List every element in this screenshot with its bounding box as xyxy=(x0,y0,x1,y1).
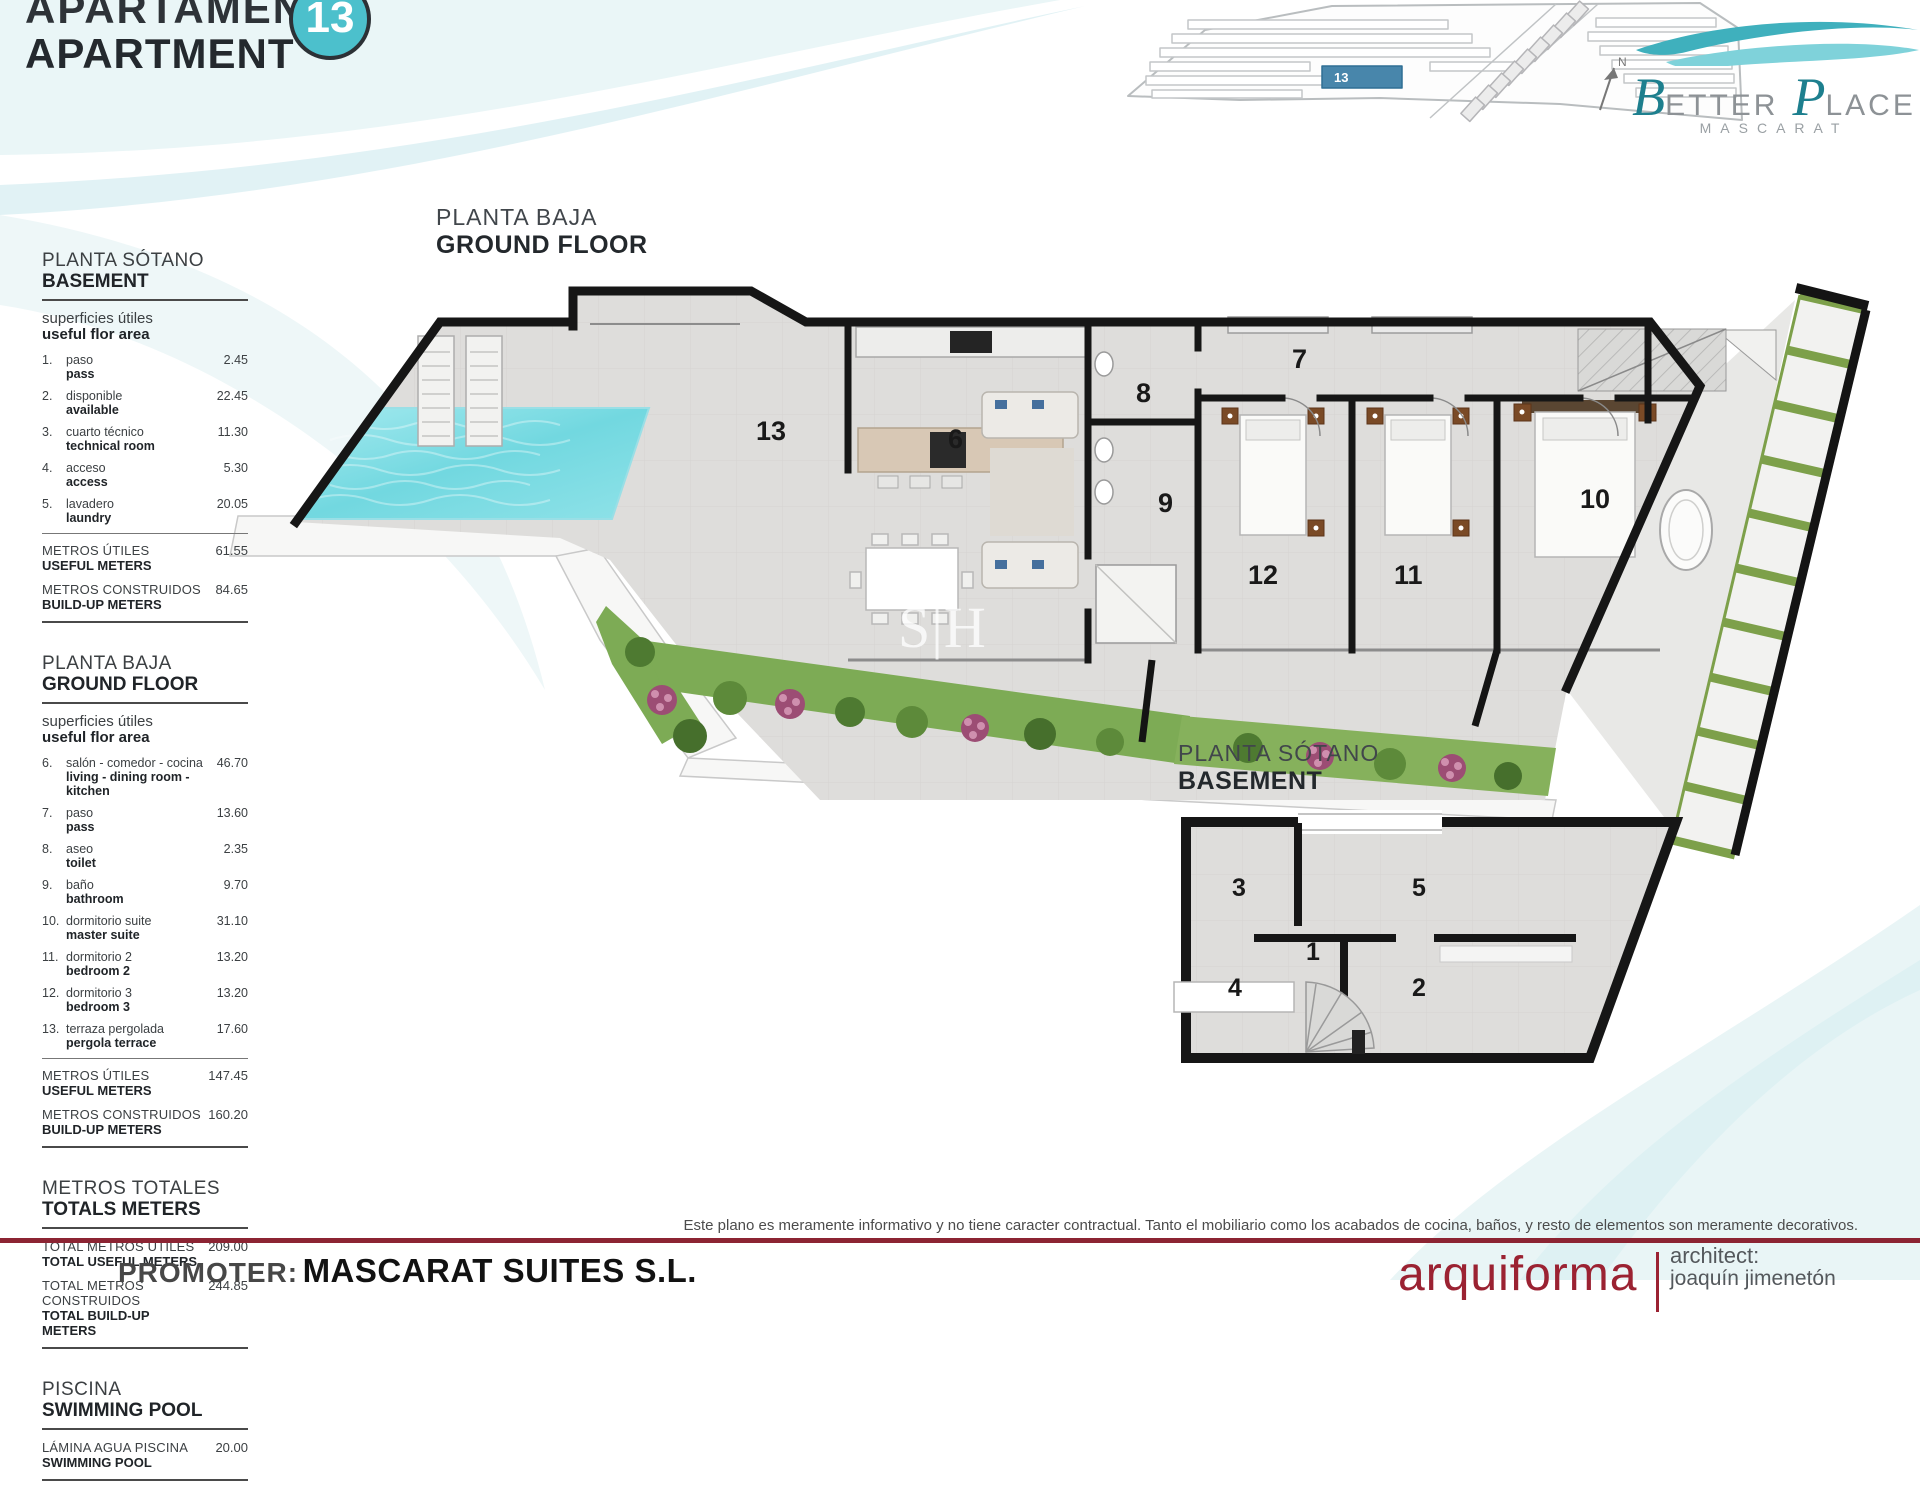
total-row-label-es: METROS ÚTILES xyxy=(42,1068,204,1083)
total-row-label-en: USEFUL METERS xyxy=(42,1083,204,1098)
area-row-value: 20.05 xyxy=(208,497,248,525)
brand-word-lace: LACE xyxy=(1825,89,1915,122)
area-row: 6.salón - comedor - cocinaliving - dinin… xyxy=(42,756,248,798)
section-end-rule xyxy=(42,1347,248,1349)
area-row-labels: cuarto técnicotechnical room xyxy=(66,425,208,453)
basement-plan: 3 5 1 4 2 xyxy=(1174,810,1676,1058)
floor-plan-sheet: { "header": { "title_es": "APARTAMENTO",… xyxy=(0,0,1920,1280)
area-row: 8.aseotoilet2.35 xyxy=(42,842,248,870)
ground-floor-heading-en: GROUND FLOOR xyxy=(436,231,648,260)
room-label: 4 xyxy=(1228,974,1242,1002)
architect-credit: architect: joaquín jimenetón xyxy=(1670,1244,1836,1290)
area-row-value: 46.70 xyxy=(208,756,248,798)
area-row-label-es: dormitorio 2 xyxy=(66,950,208,964)
total-row: METROS ÚTILESUSEFUL METERS147.45 xyxy=(42,1068,248,1098)
area-row-labels: bañobathroom xyxy=(66,878,208,906)
basement-light-band xyxy=(1440,946,1572,962)
watermark: S|H xyxy=(898,594,987,661)
area-row-label-es: lavadero xyxy=(66,497,208,511)
area-row-number: 2. xyxy=(42,389,66,417)
ground-floor-plan: 13 6 7 8 9 12 11 10 xyxy=(230,287,1868,855)
area-row-number: 7. xyxy=(42,806,66,834)
room-label: 1 xyxy=(1306,938,1320,966)
promoter-name: MASCARAT SUITES S.L. xyxy=(303,1252,697,1289)
area-row-label-en: toilet xyxy=(66,856,208,870)
room-label: 13 xyxy=(756,416,786,446)
section-rule-thin xyxy=(42,1058,248,1059)
total-row-label-es: LÁMINA AGUA PISCINA xyxy=(42,1440,204,1455)
area-row-labels: pasopass xyxy=(66,806,208,834)
area-row-value: 11.30 xyxy=(208,425,248,453)
promoter-label: PROMOTER: xyxy=(118,1257,298,1288)
total-row-labels: METROS ÚTILESUSEFUL METERS xyxy=(42,1068,204,1098)
area-row-labels: lavaderolaundry xyxy=(66,497,208,525)
area-row-label-es: baño xyxy=(66,878,208,892)
area-row-label-en: master suite xyxy=(66,928,208,942)
architect-label: architect: xyxy=(1670,1244,1836,1267)
section-title-es: METROS TOTALES xyxy=(42,1178,248,1199)
area-row-number: 13. xyxy=(42,1022,66,1050)
total-row-label-es: METROS ÚTILES xyxy=(42,543,204,558)
basement-heading-en: BASEMENT xyxy=(1178,767,1379,796)
section-subtitle-es: superficies útiles xyxy=(42,714,248,730)
area-row-label-es: dormitorio 3 xyxy=(66,986,208,1000)
area-row-labels: dormitorio suitemaster suite xyxy=(66,914,208,942)
area-row: 7.pasopass13.60 xyxy=(42,806,248,834)
section-subtitle-en: useful flor area xyxy=(42,730,248,746)
area-row-label-en: bathroom xyxy=(66,892,208,906)
total-row-value: 160.20 xyxy=(204,1107,248,1137)
area-row: 2.disponibleavailable22.45 xyxy=(42,389,248,417)
total-row-label-es: METROS CONSTRUIDOS xyxy=(42,582,204,597)
total-row-labels: METROS CONSTRUIDOSBUILD-UP METERS xyxy=(42,582,204,612)
promoter-credit: PROMOTER: MASCARAT SUITES S.L. xyxy=(118,1252,697,1290)
section-title-en: TOTALS METERS xyxy=(42,1199,248,1220)
area-row: 5.lavaderolaundry20.05 xyxy=(42,497,248,525)
brand-subtitle: MASCARAT xyxy=(1628,120,1920,136)
section-rule xyxy=(42,1428,248,1430)
section-title-es: PLANTA SÓTANO xyxy=(42,250,248,271)
sidebar-section: PLANTA BAJAGROUND FLOORsuperficies útile… xyxy=(42,653,248,1148)
section-rule-thin xyxy=(42,533,248,534)
room-label: 11 xyxy=(1394,560,1423,590)
architecture-studio-logo: arquiforma xyxy=(1398,1247,1637,1302)
brand-letter-p: P xyxy=(1792,67,1825,127)
section-title-es: PLANTA BAJA xyxy=(42,653,248,674)
area-row-labels: salón - comedor - cocinaliving - dining … xyxy=(66,756,208,798)
area-row-value: 2.35 xyxy=(208,842,248,870)
total-row-label-es: METROS CONSTRUIDOS xyxy=(42,1107,204,1122)
total-row-labels: METROS CONSTRUIDOSBUILD-UP METERS xyxy=(42,1107,204,1137)
area-row-label-en: pass xyxy=(66,367,208,381)
basement-heading: PLANTA SÓTANO BASEMENT xyxy=(1178,740,1379,796)
area-row: 4.accesoaccess5.30 xyxy=(42,461,248,489)
area-row-label-en: bedroom 2 xyxy=(66,964,208,978)
room-label: 7 xyxy=(1292,344,1307,374)
area-row-labels: dormitorio 2bedroom 2 xyxy=(66,950,208,978)
total-row-label-en: SWIMMING POOL xyxy=(42,1455,204,1470)
area-row-label-en: available xyxy=(66,403,208,417)
total-row-labels: LÁMINA AGUA PISCINASWIMMING POOL xyxy=(42,1440,204,1470)
room-label: 12 xyxy=(1248,560,1278,590)
ground-floor-heading-es: PLANTA BAJA xyxy=(436,204,648,231)
total-row-label-en: TOTAL BUILD-UP METERS xyxy=(42,1308,204,1338)
total-row-label-en: BUILD-UP METERS xyxy=(42,1122,204,1137)
area-row-label-es: aseo xyxy=(66,842,208,856)
brand-logo: BETTERPLACE MASCARAT xyxy=(1628,14,1920,134)
area-row-number: 12. xyxy=(42,986,66,1014)
room-label: 10 xyxy=(1580,484,1610,514)
total-row: LÁMINA AGUA PISCINASWIMMING POOL20.00 xyxy=(42,1440,248,1470)
area-row-label-en: laundry xyxy=(66,511,208,525)
total-row-value: 84.65 xyxy=(204,582,248,612)
total-row: METROS CONSTRUIDOSBUILD-UP METERS84.65 xyxy=(42,582,248,612)
area-row-number: 6. xyxy=(42,756,66,798)
section-rule xyxy=(42,702,248,704)
area-row-number: 8. xyxy=(42,842,66,870)
area-row-number: 5. xyxy=(42,497,66,525)
area-row-labels: accesoaccess xyxy=(66,461,208,489)
total-row-label-en: BUILD-UP METERS xyxy=(42,597,204,612)
area-row-value: 13.60 xyxy=(208,806,248,834)
area-row-label-en: access xyxy=(66,475,208,489)
section-rule xyxy=(42,299,248,301)
area-tables-sidebar: PLANTA SÓTANOBASEMENTsuperficies útilesu… xyxy=(42,250,248,1511)
section-title-es: PISCINA xyxy=(42,1379,248,1400)
area-row-label-en: living - dining room - kitchen xyxy=(66,770,208,798)
total-row-label-en: USEFUL METERS xyxy=(42,558,204,573)
total-row: METROS CONSTRUIDOSBUILD-UP METERS160.20 xyxy=(42,1107,248,1137)
section-end-rule xyxy=(42,1479,248,1481)
area-row-value: 5.30 xyxy=(208,461,248,489)
svg-text:N: N xyxy=(1618,55,1627,69)
area-row-labels: terraza pergoladapergola terrace xyxy=(66,1022,208,1050)
area-row-label-es: paso xyxy=(66,806,208,820)
area-row-value: 17.60 xyxy=(208,1022,248,1050)
ground-floor-heading: PLANTA BAJA GROUND FLOOR xyxy=(436,204,648,260)
area-row-labels: dormitorio 3bedroom 3 xyxy=(66,986,208,1014)
sidebar-section: PISCINASWIMMING POOLLÁMINA AGUA PISCINAS… xyxy=(42,1379,248,1481)
section-title-en: SWIMMING POOL xyxy=(42,1400,248,1421)
room-label: 6 xyxy=(948,424,963,454)
section-subtitle-en: useful flor area xyxy=(42,327,248,343)
area-row-value: 31.10 xyxy=(208,914,248,942)
sidebar-sections: PLANTA SÓTANOBASEMENTsuperficies útilesu… xyxy=(42,250,248,1481)
area-row-label-es: acceso xyxy=(66,461,208,475)
disclaimer-text: Este plano es meramente informativo y no… xyxy=(683,1217,1858,1234)
section-end-rule xyxy=(42,1146,248,1148)
room-label: 2 xyxy=(1412,974,1426,1002)
total-row: METROS ÚTILESUSEFUL METERS61.55 xyxy=(42,543,248,573)
area-row-label-en: technical room xyxy=(66,439,208,453)
area-row-number: 3. xyxy=(42,425,66,453)
total-row-labels: METROS ÚTILESUSEFUL METERS xyxy=(42,543,204,573)
brand-word-etter: ETTER xyxy=(1665,89,1778,122)
total-row-value: 61.55 xyxy=(204,543,248,573)
area-row-value: 22.45 xyxy=(208,389,248,417)
footer-divider-line xyxy=(0,1238,1920,1243)
area-row: 13.terraza pergoladapergola terrace17.60 xyxy=(42,1022,248,1050)
area-row-label-es: cuarto técnico xyxy=(66,425,208,439)
total-row-value: 20.00 xyxy=(204,1440,248,1470)
area-row-label-es: paso xyxy=(66,353,208,367)
sidebar-section: PLANTA SÓTANOBASEMENTsuperficies útilesu… xyxy=(42,250,248,623)
area-row-value: 13.20 xyxy=(208,950,248,978)
area-row-label-es: terraza pergolada xyxy=(66,1022,208,1036)
section-rule xyxy=(42,1227,248,1229)
area-row-number: 10. xyxy=(42,914,66,942)
area-row-label-es: disponible xyxy=(66,389,208,403)
area-row-number: 11. xyxy=(42,950,66,978)
area-row: 9.bañobathroom9.70 xyxy=(42,878,248,906)
area-row: 11.dormitorio 2bedroom 213.20 xyxy=(42,950,248,978)
room-label: 3 xyxy=(1232,874,1246,902)
area-row-label-es: dormitorio suite xyxy=(66,914,208,928)
section-title-en: BASEMENT xyxy=(42,271,248,292)
basement-heading-es: PLANTA SÓTANO xyxy=(1178,740,1379,767)
area-row-label-en: pass xyxy=(66,820,208,834)
room-label: 8 xyxy=(1136,378,1151,408)
area-row-label-en: bedroom 3 xyxy=(66,1000,208,1014)
area-row-label-es: salón - comedor - cocina xyxy=(66,756,208,770)
area-row: 12.dormitorio 3bedroom 313.20 xyxy=(42,986,248,1014)
area-row-labels: aseotoilet xyxy=(66,842,208,870)
area-row-value: 9.70 xyxy=(208,878,248,906)
area-row-number: 1. xyxy=(42,353,66,381)
room-label: 5 xyxy=(1412,874,1426,902)
area-row: 3.cuarto técnicotechnical room11.30 xyxy=(42,425,248,453)
area-row-labels: disponibleavailable xyxy=(66,389,208,417)
area-row-number: 4. xyxy=(42,461,66,489)
section-subtitle-es: superficies útiles xyxy=(42,311,248,327)
area-row-value: 13.20 xyxy=(208,986,248,1014)
area-row: 10.dormitorio suitemaster suite31.10 xyxy=(42,914,248,942)
ground-floor-stairs xyxy=(1578,329,1726,391)
room-label: 9 xyxy=(1158,488,1173,518)
section-title-en: GROUND FLOOR xyxy=(42,674,248,695)
architect-name: joaquín jimenetón xyxy=(1670,1267,1836,1290)
area-row-value: 2.45 xyxy=(208,353,248,381)
keyplan-unit-number: 13 xyxy=(1334,70,1348,85)
area-row: 1.pasopass2.45 xyxy=(42,353,248,381)
brand-wordmark: BETTERPLACE xyxy=(1628,66,1920,128)
living-room-sofas xyxy=(982,392,1078,588)
brand-letter-b: B xyxy=(1632,67,1665,127)
area-row-labels: pasopass xyxy=(66,353,208,381)
brand-swoosh-icon xyxy=(1628,14,1920,66)
area-row-number: 9. xyxy=(42,878,66,906)
footer-vertical-divider xyxy=(1656,1252,1659,1312)
area-row-label-en: pergola terrace xyxy=(66,1036,208,1050)
section-end-rule xyxy=(42,621,248,623)
total-row-value: 147.45 xyxy=(204,1068,248,1098)
